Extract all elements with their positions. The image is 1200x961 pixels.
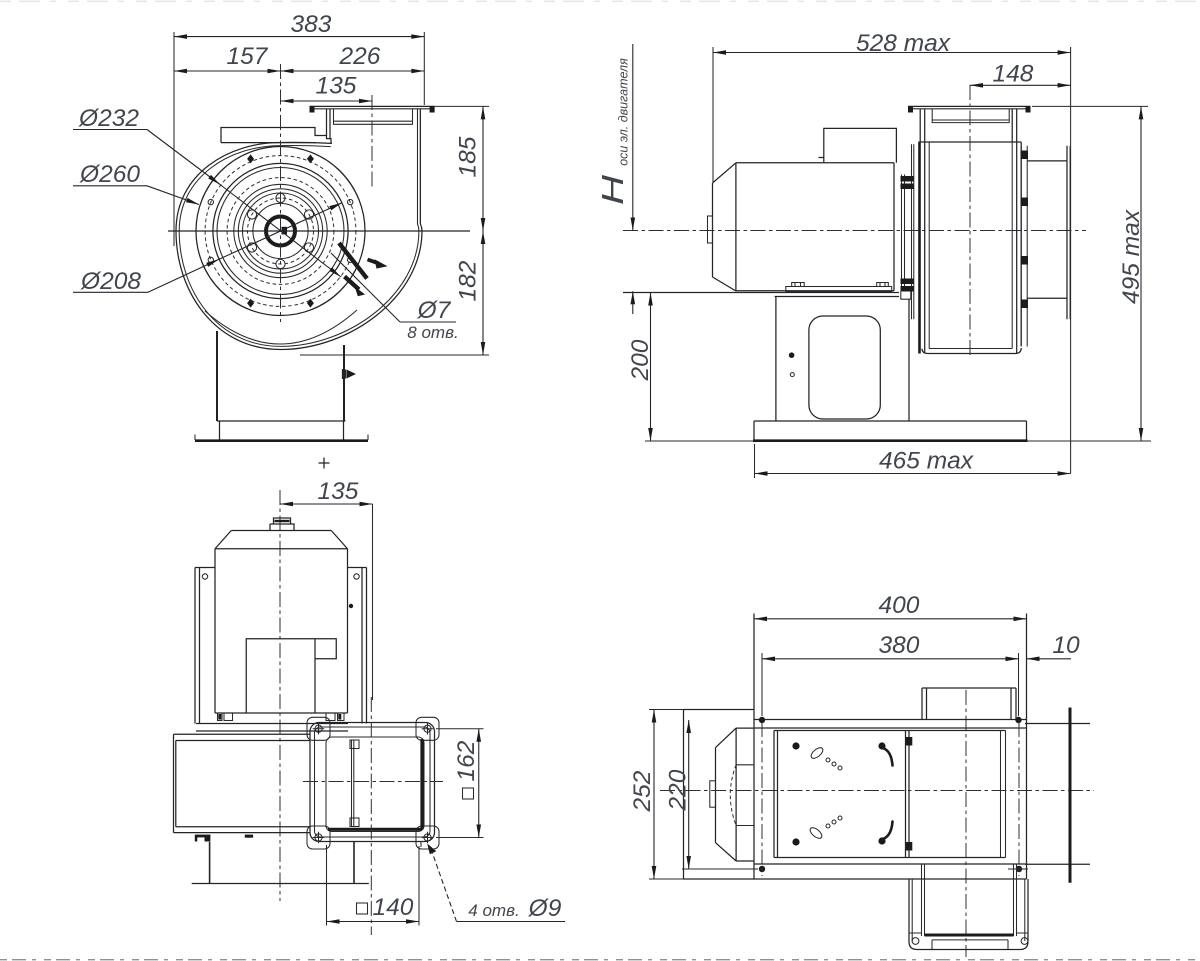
svg-text:185: 185	[455, 136, 482, 177]
svg-text:220: 220	[665, 769, 692, 811]
svg-text:Ø7: Ø7	[417, 297, 452, 324]
svg-text:495 max: 495 max	[1118, 209, 1145, 304]
svg-text:182: 182	[455, 260, 482, 301]
svg-text:Ø232: Ø232	[78, 105, 139, 132]
svg-text:465 max: 465 max	[879, 448, 974, 475]
svg-text:Ø9: Ø9	[528, 895, 562, 922]
svg-text:162: 162	[453, 740, 480, 781]
svg-text:148: 148	[993, 61, 1034, 88]
svg-text:оси эл. двигателя: оси эл. двигателя	[617, 58, 631, 166]
svg-text:528 max: 528 max	[856, 30, 951, 57]
svg-text:135: 135	[316, 73, 357, 100]
svg-text:383: 383	[291, 11, 332, 38]
svg-text:Ø260: Ø260	[79, 161, 140, 188]
svg-text:400: 400	[879, 592, 920, 619]
svg-text:226: 226	[339, 43, 381, 70]
svg-text:200: 200	[627, 339, 654, 381]
svg-text:380: 380	[879, 632, 920, 659]
svg-text:H: H	[595, 174, 630, 205]
svg-text:252: 252	[629, 770, 656, 812]
svg-text:8 отв.: 8 отв.	[407, 323, 458, 342]
svg-text:135: 135	[318, 478, 359, 505]
svg-text:Ø208: Ø208	[80, 268, 141, 295]
svg-text:140: 140	[373, 894, 414, 921]
svg-text:10: 10	[1052, 632, 1080, 659]
svg-text:4 отв.: 4 отв.	[468, 901, 519, 920]
svg-text:157: 157	[227, 43, 269, 70]
